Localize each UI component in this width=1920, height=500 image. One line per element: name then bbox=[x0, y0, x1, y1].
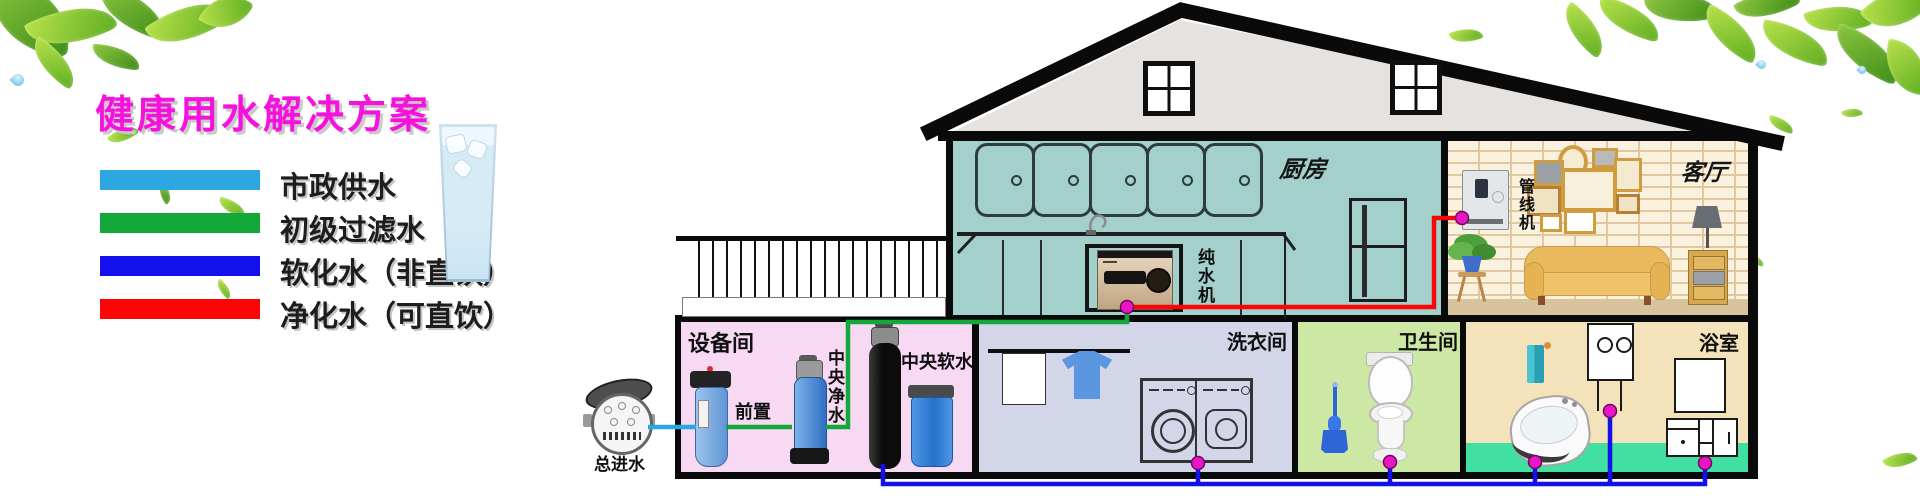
pipe-joint bbox=[1456, 212, 1469, 225]
pipe-joint bbox=[1121, 301, 1134, 314]
pipe-joint bbox=[1529, 456, 1542, 469]
pipe-network bbox=[0, 0, 1920, 500]
poster-canvas: 健康用水解决方案 市政供水 初级过滤水 软化水（非直饮） 净化水（可直饮） bbox=[0, 0, 1920, 500]
pipe-joint bbox=[1192, 457, 1205, 470]
pipe-joint bbox=[1384, 456, 1397, 469]
pipe-filtered bbox=[826, 308, 1127, 427]
pipe-purified bbox=[1127, 218, 1461, 307]
pipe-softened bbox=[883, 464, 1705, 484]
pipe-joint bbox=[1604, 405, 1617, 418]
pipe-joint bbox=[1699, 457, 1712, 470]
